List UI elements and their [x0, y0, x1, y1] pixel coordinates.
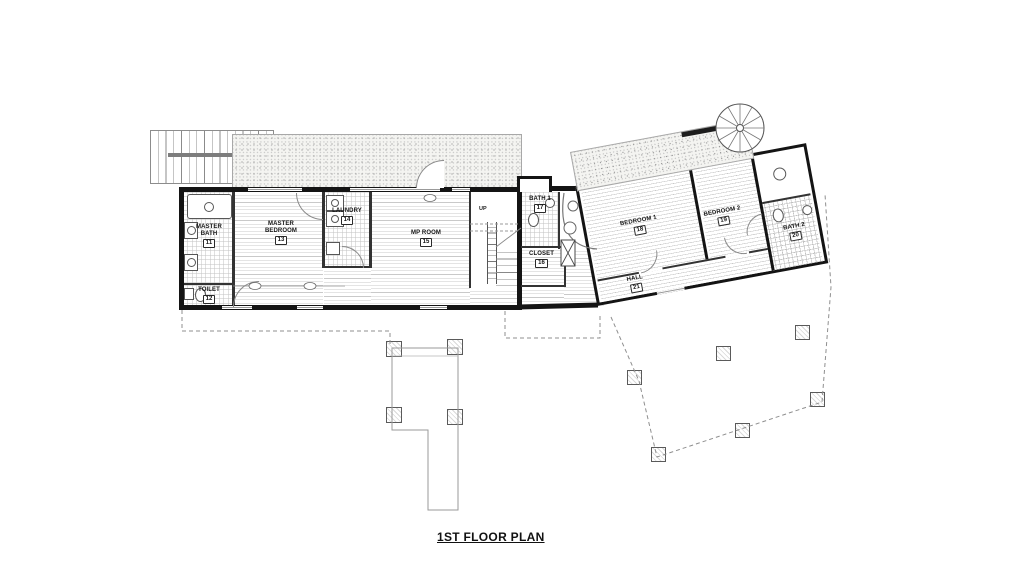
room-number-tag: 11 — [203, 239, 216, 248]
hall-strip-floor — [324, 268, 372, 306]
deck-post — [386, 407, 402, 423]
wall-west — [179, 187, 184, 310]
deck-dashed-outline-mid — [505, 311, 600, 338]
entry-stub — [517, 176, 552, 192]
deck-post — [651, 447, 666, 462]
deck-post — [810, 392, 825, 407]
deck-post — [735, 423, 750, 438]
window — [248, 188, 302, 191]
deck-rail-wall — [681, 120, 747, 136]
page-title: 1ST FLOOR PLAN — [437, 530, 545, 544]
room-number-tag: 17 — [534, 204, 547, 213]
washer-door-icon — [331, 199, 339, 207]
wall-masterbath-bedroom — [232, 192, 235, 306]
laundry-sink — [326, 242, 340, 255]
deck-upper-left — [232, 134, 522, 189]
wall-closet-east — [564, 247, 566, 287]
wall-closet-south — [521, 285, 566, 287]
window — [420, 306, 447, 309]
room-label-mp-room: MP ROOM 15 — [406, 230, 446, 247]
window — [350, 188, 440, 191]
room-name: CLOSET — [529, 251, 554, 258]
room-name: TOILET — [198, 287, 220, 294]
room-label-master-bedroom: MASTER BEDROOM 13 — [257, 221, 305, 245]
stair-south-floor — [470, 288, 520, 306]
deck-post — [716, 346, 731, 361]
room-name: MASTER BEDROOM — [257, 221, 305, 235]
wall-toilet-north — [183, 283, 233, 285]
room-number-tag: 13 — [275, 236, 288, 245]
room-mp-room-floor — [371, 192, 470, 306]
deck-post — [627, 370, 642, 385]
room-number-tag: 12 — [203, 295, 216, 304]
toilet-fixture — [528, 213, 539, 227]
wall-bath1-south — [521, 246, 561, 248]
sink-basin-icon — [187, 258, 196, 267]
room-number-tag: 15 — [420, 238, 433, 247]
pier-outline — [392, 348, 458, 510]
room-label-laundry: LAUNDRY 14 — [327, 208, 367, 225]
room-name: MP ROOM — [411, 230, 441, 237]
deck-post — [447, 339, 463, 355]
mid-south-floor — [520, 287, 564, 306]
wall-mp-stair — [469, 192, 471, 288]
shower-drain-icon — [204, 202, 214, 212]
deck-post — [386, 341, 402, 357]
room-label-toilet: TOILET 12 — [191, 287, 227, 304]
window — [452, 188, 470, 191]
deck-dashed-outline-left — [182, 310, 390, 345]
room-label-bath1: BATH 1 17 — [524, 196, 556, 213]
deck-post — [447, 409, 463, 425]
window — [297, 306, 323, 309]
room-name: MASTER BATH — [189, 224, 229, 238]
room-label-closet: CLOSET 16 — [524, 251, 559, 268]
room-label-master-bath: MASTER BATH 11 — [189, 224, 229, 248]
room-name: LAUNDRY — [332, 208, 362, 215]
wall-bath1-east — [558, 192, 560, 249]
room-number-tag: 14 — [341, 216, 354, 225]
wall-laundry-mp — [369, 192, 372, 268]
floor-plan-canvas: BEDROOM 1 18 BEDROOM 2 19 BATH 2 20 HALL… — [0, 0, 1024, 576]
room-name: BATH 1 — [529, 196, 551, 203]
deck-post — [795, 325, 810, 340]
room-number-tag: 16 — [535, 259, 548, 268]
stair-up-label: UP — [479, 206, 487, 212]
